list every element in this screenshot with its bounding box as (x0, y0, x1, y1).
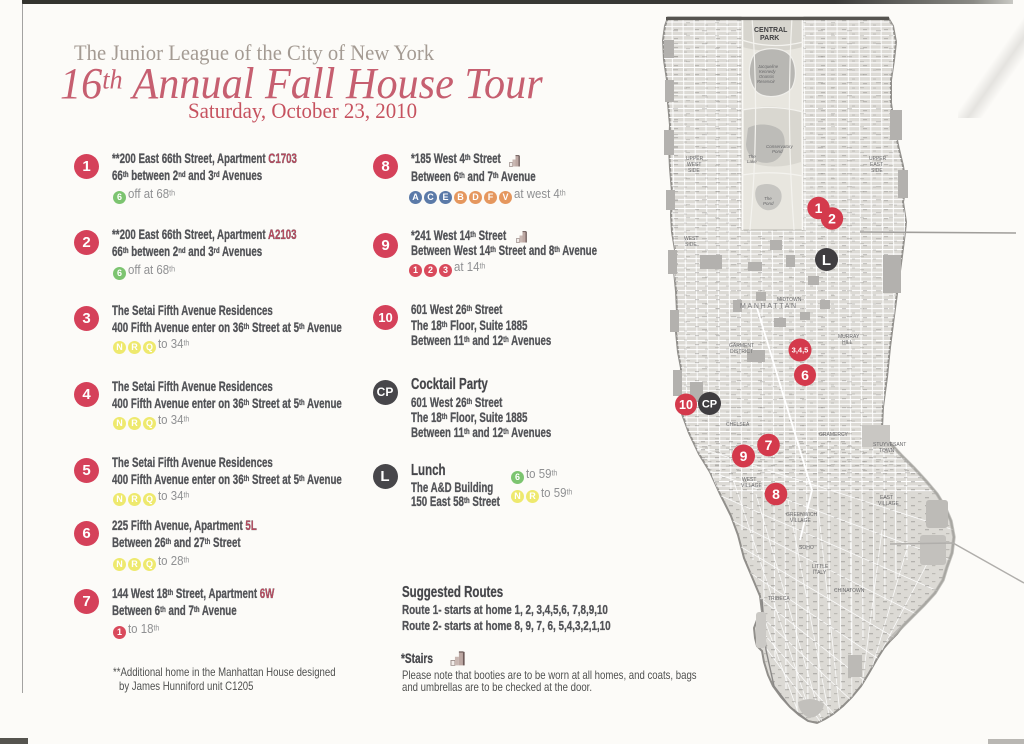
svg-text:1: 1 (815, 200, 823, 216)
svg-text:Pond: Pond (772, 149, 783, 154)
svg-text:SIDE: SIDE (871, 168, 883, 174)
svg-text:3,4,5: 3,4,5 (792, 346, 809, 355)
svg-text:SIDE: SIDE (688, 168, 700, 174)
svg-text:Reservoir: Reservoir (757, 79, 776, 84)
svg-text:VILLAGE: VILLAGE (878, 501, 900, 507)
svg-text:SIDE: SIDE (685, 242, 697, 248)
svg-text:10: 10 (679, 398, 693, 412)
svg-text:TOWN: TOWN (879, 448, 895, 454)
svg-text:CHELSEA: CHELSEA (726, 422, 750, 428)
svg-text:Lake: Lake (747, 159, 757, 164)
svg-text:7: 7 (765, 437, 773, 453)
svg-text:DISTRICT: DISTRICT (730, 349, 753, 355)
svg-text:CHINATOWN: CHINATOWN (834, 588, 865, 594)
svg-text:GRAMERCY: GRAMERCY (819, 432, 849, 438)
svg-text:L: L (822, 252, 831, 269)
svg-text:VILLAGE: VILLAGE (741, 483, 763, 489)
svg-text:HILL: HILL (842, 340, 853, 346)
svg-text:ITALY: ITALY (813, 570, 827, 576)
svg-text:8: 8 (772, 486, 780, 502)
svg-text:Pond: Pond (763, 201, 774, 206)
svg-text:PARK: PARK (760, 35, 779, 42)
svg-text:2: 2 (828, 211, 836, 227)
svg-text:CENTRAL: CENTRAL (754, 27, 788, 34)
svg-text:TRIBECA: TRIBECA (768, 596, 790, 602)
svg-text:MANHATTAN: MANHATTAN (740, 303, 798, 310)
svg-text:9: 9 (740, 448, 748, 464)
svg-text:CP: CP (702, 398, 717, 410)
svg-text:SOHO: SOHO (799, 545, 814, 551)
svg-text:6: 6 (801, 367, 809, 383)
svg-text:VILLAGE: VILLAGE (790, 518, 812, 524)
